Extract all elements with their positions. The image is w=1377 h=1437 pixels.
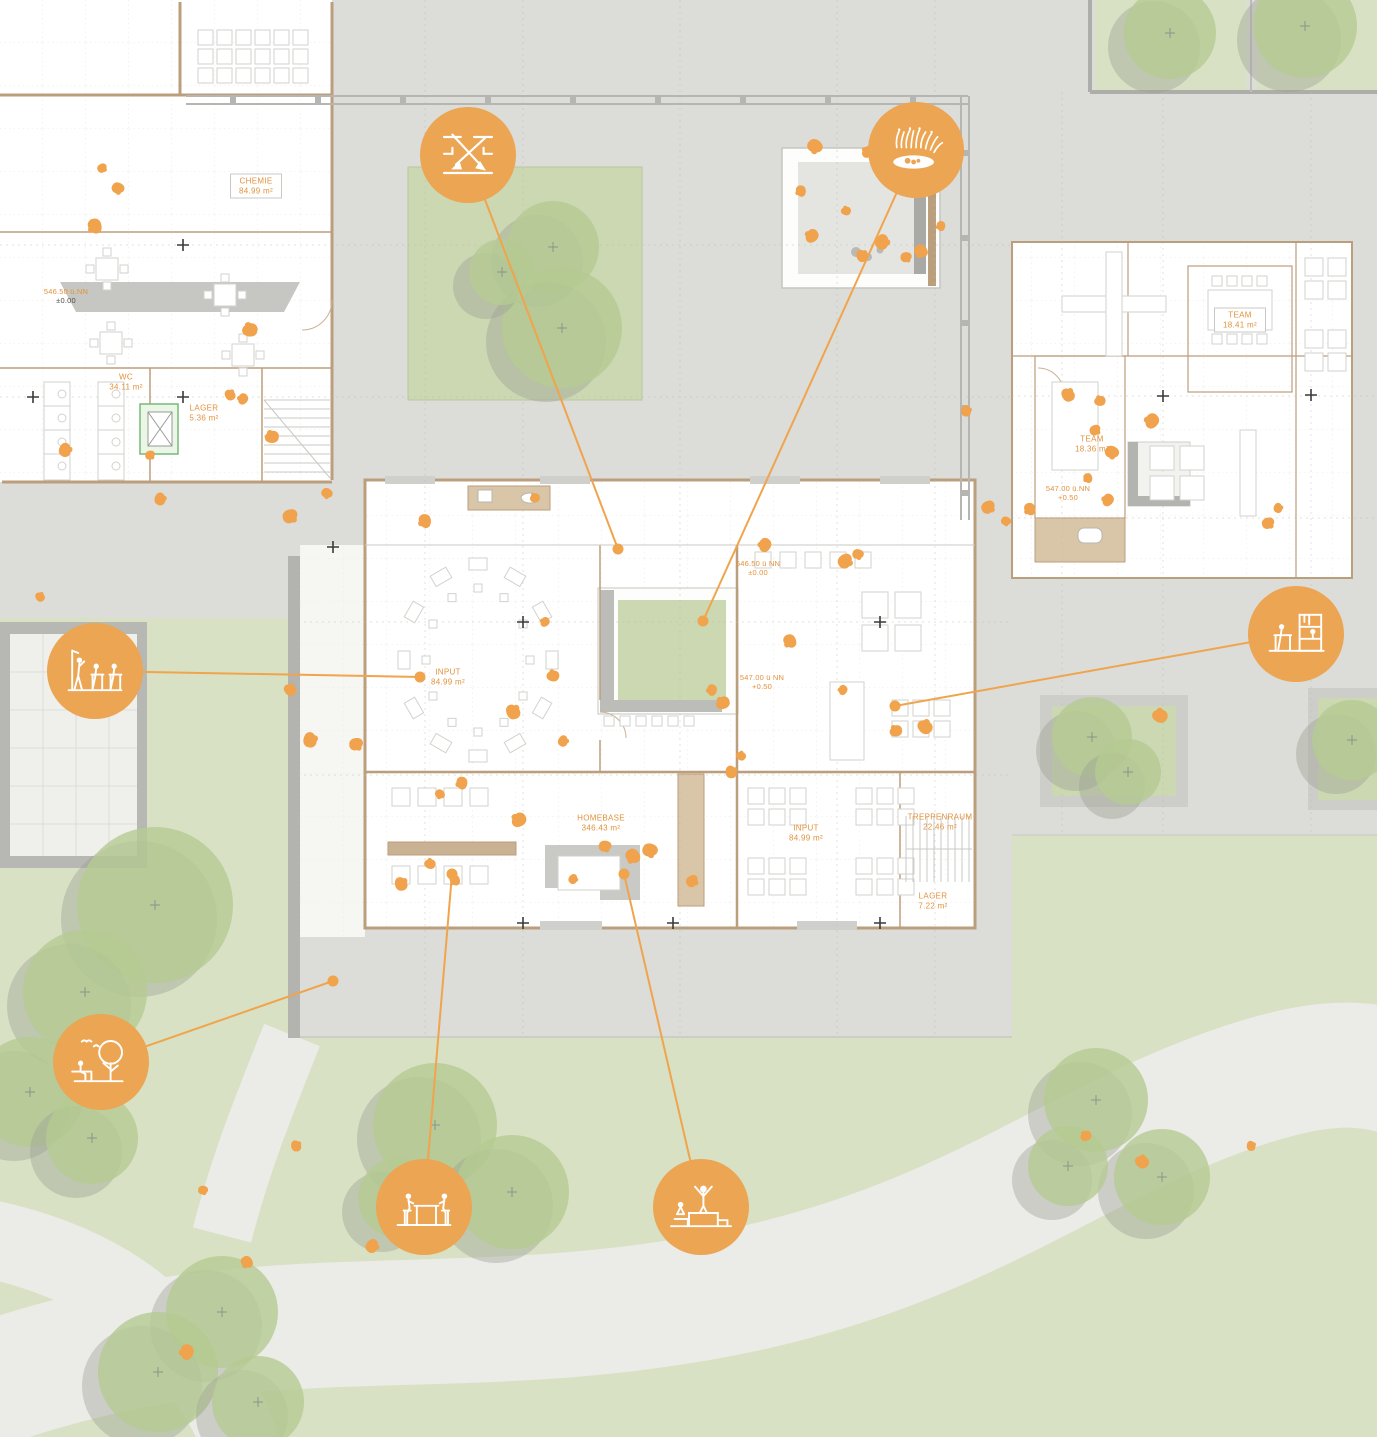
circulation-arrows-icon[interactable] xyxy=(420,107,516,203)
room-label-team-1: TEAM18.41 m² xyxy=(1214,308,1266,333)
room-label-homebase: HOMEBASE346.43 m² xyxy=(577,814,625,833)
elevation-mark-team: 547.00 ü.NN+0.50 xyxy=(1046,484,1090,502)
room-label-input-1: INPUT84.99 m² xyxy=(431,668,465,687)
podium-icon[interactable] xyxy=(653,1159,749,1255)
elevation-mark-hall: 547.00 ü NN+0.50 xyxy=(740,673,784,691)
room-label-lager-1: LAGER5.36 m² xyxy=(189,404,218,423)
garden-pond-icon[interactable] xyxy=(868,102,964,198)
room-label-team-2: TEAM18.36 m² xyxy=(1075,435,1109,454)
room-label-treppenraum: TREPPENRAUM22.46 m² xyxy=(908,813,973,832)
furniture-shelf-icon[interactable] xyxy=(1248,586,1344,682)
room-label-lager-2: LAGER7.22 m² xyxy=(918,892,947,911)
elevation-mark-court: 546.50 ü NN±0.00 xyxy=(736,559,780,577)
classroom-icon[interactable] xyxy=(47,623,143,719)
elevation-mark-entry: 546.50 ü.NN±0.00 xyxy=(44,287,88,305)
room-label-input-2: INPUT84.99 m² xyxy=(789,824,823,843)
room-label-chemie: CHEMIE84.99 m² xyxy=(230,174,282,199)
picnic-table-icon[interactable] xyxy=(376,1159,472,1255)
room-label-wc: WC34.11 m² xyxy=(109,373,142,392)
site-plan: CHEMIE84.99 m² WC34.11 m² LAGER5.36 m² T… xyxy=(0,0,1377,1437)
tree-bench-icon[interactable] xyxy=(53,1014,149,1110)
